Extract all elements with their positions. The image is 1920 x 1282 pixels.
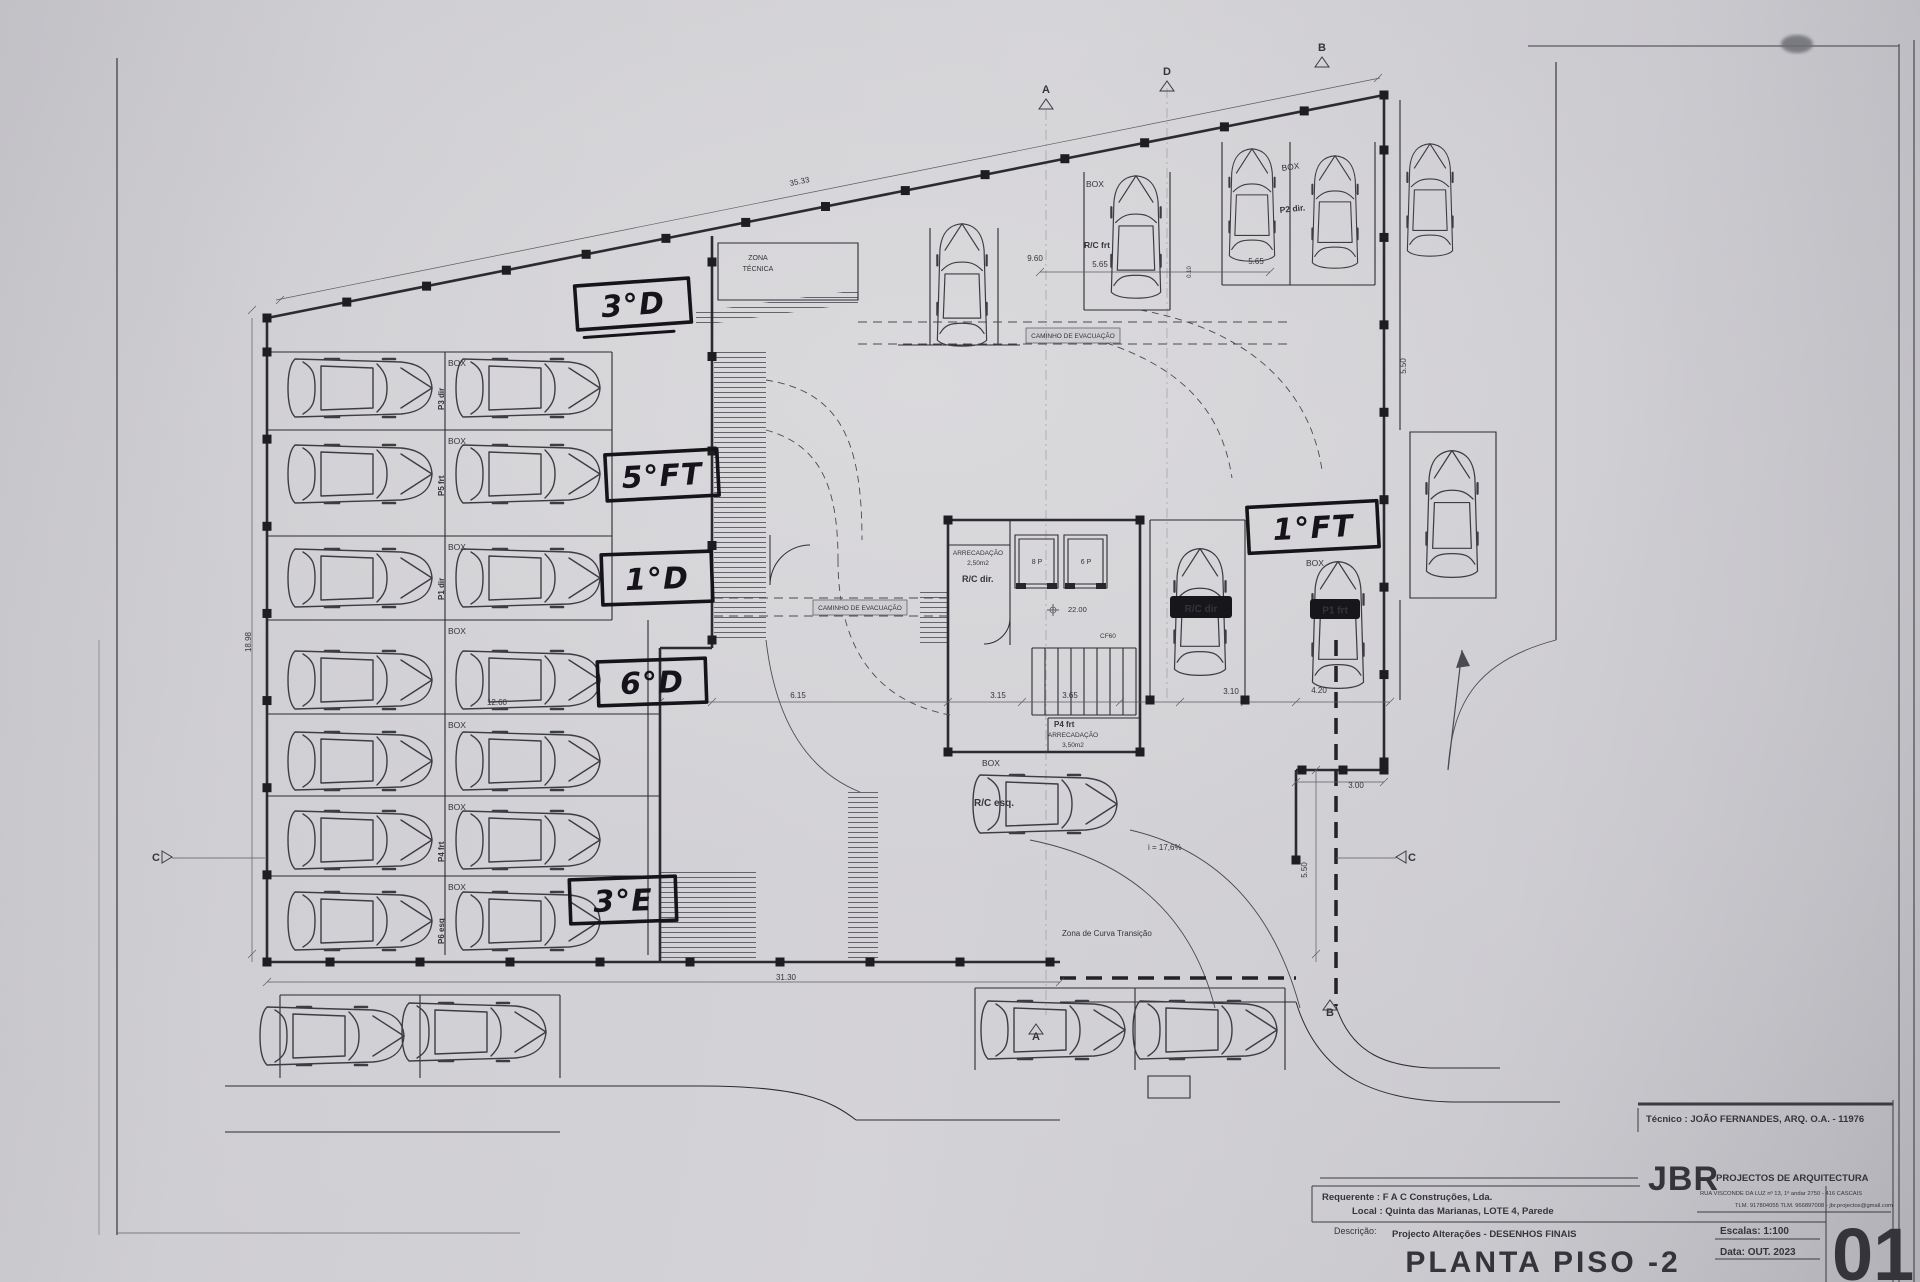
handwritten-text: 1°D bbox=[625, 561, 690, 598]
plan-label: BOX bbox=[1281, 161, 1300, 173]
car-icon bbox=[288, 359, 432, 417]
column-square bbox=[1300, 106, 1309, 115]
plan-label: P4 frt bbox=[1054, 720, 1075, 729]
car-icon bbox=[1312, 562, 1363, 689]
date-field: Data: OUT. 2023 bbox=[1720, 1247, 1796, 1258]
column-square bbox=[1380, 146, 1389, 155]
plan-label: Zona de Curva Transição bbox=[1062, 929, 1152, 938]
column-square bbox=[263, 522, 272, 531]
plan-label: 8 P bbox=[1032, 559, 1043, 566]
car-icon bbox=[456, 892, 600, 950]
firm-name: PROJECTOS DE ARQUITECTURA bbox=[1716, 1173, 1869, 1184]
handwritten-text: 1°FT bbox=[1272, 509, 1356, 548]
column-square bbox=[263, 958, 272, 967]
sheet-number: 01 bbox=[1832, 1213, 1914, 1282]
column-square bbox=[1380, 670, 1389, 679]
column-square bbox=[1380, 233, 1389, 242]
column-square bbox=[1046, 958, 1055, 967]
driveway-guides bbox=[714, 310, 1556, 1008]
column-square bbox=[263, 783, 272, 792]
car-icon bbox=[288, 445, 432, 503]
section-letter: C bbox=[152, 852, 160, 864]
plan-label: BOX bbox=[448, 720, 466, 730]
dimension-label: 5.65 bbox=[1248, 257, 1264, 266]
description-label: Descrição: bbox=[1334, 1226, 1377, 1236]
section-triangle-icon bbox=[162, 851, 172, 863]
section-letter: A bbox=[1042, 84, 1050, 96]
column-square bbox=[263, 348, 272, 357]
car-icon bbox=[456, 651, 600, 709]
car-icon bbox=[260, 1007, 404, 1065]
car-icon bbox=[456, 811, 600, 869]
column-square bbox=[741, 218, 750, 227]
ramp-hatching bbox=[660, 290, 948, 958]
column-square bbox=[1140, 138, 1149, 147]
column-square bbox=[263, 696, 272, 705]
column-square bbox=[1220, 122, 1229, 131]
column-square bbox=[342, 298, 351, 307]
dimension-label: 4.20 bbox=[1311, 686, 1327, 695]
section-triangle-icon bbox=[1315, 57, 1329, 67]
car-icon bbox=[456, 732, 600, 790]
dimension-label: 3.00 bbox=[1348, 781, 1364, 790]
section-letter: B bbox=[1326, 1007, 1334, 1019]
dimension-label: 6.15 bbox=[790, 691, 806, 700]
dimension-label: 3.10 bbox=[1223, 687, 1239, 696]
dimension-label: 18.98 bbox=[244, 631, 253, 652]
column-square bbox=[866, 958, 875, 967]
section-letter: B bbox=[1318, 42, 1326, 54]
plan-label: BOX bbox=[448, 436, 466, 446]
section-letter: A bbox=[1032, 1031, 1040, 1043]
plan-label: i = 17,6% bbox=[1148, 843, 1182, 852]
handwritten-note: 6°D bbox=[597, 658, 706, 706]
dimension-label: 3.65 bbox=[1062, 691, 1078, 700]
description-field: Projecto Alterações - DESENHOS FINAIS bbox=[1392, 1229, 1576, 1240]
dimension-label: 35.33 bbox=[789, 175, 811, 188]
column-square bbox=[686, 958, 695, 967]
column-square bbox=[1380, 408, 1389, 417]
client-field: Requerente : F A C Construções, Lda. bbox=[1322, 1192, 1492, 1203]
car-icon bbox=[1426, 451, 1477, 578]
column-square bbox=[416, 958, 425, 967]
car-icon bbox=[981, 1001, 1125, 1059]
plan-label: R/C dir. bbox=[962, 574, 994, 584]
car-icon bbox=[937, 224, 986, 346]
plan-label: 6 P bbox=[1081, 559, 1092, 566]
dimension-label: 31.30 bbox=[776, 973, 797, 982]
column-square bbox=[708, 636, 717, 645]
plan-label: ARRECADAÇÃO bbox=[1048, 730, 1098, 739]
column-square bbox=[1298, 766, 1307, 775]
plan-label: ZONA bbox=[748, 255, 768, 262]
plan-label: 2,50m2 bbox=[967, 560, 989, 567]
column-square bbox=[263, 609, 272, 618]
location-field: Local : Quinta das Marianas, LOTE 4, Par… bbox=[1352, 1206, 1554, 1217]
column-square bbox=[944, 516, 953, 525]
handwritten-underline bbox=[584, 331, 674, 337]
firm-contacts: TLM. 917804055 TLM. 966897008 - jbr.proj… bbox=[1735, 1203, 1893, 1209]
column-square bbox=[596, 958, 605, 967]
car-icon bbox=[456, 549, 600, 607]
column-square bbox=[1136, 516, 1145, 525]
column-square bbox=[506, 958, 515, 967]
column-square bbox=[708, 352, 717, 361]
car-icon bbox=[288, 892, 432, 950]
handwritten-unit-notes: 3°D5°FT1°D6°D3°E1°FT bbox=[569, 278, 1379, 924]
column-square bbox=[821, 202, 830, 211]
section-letter: D bbox=[1163, 66, 1171, 78]
section-triangle-icon bbox=[1039, 99, 1053, 109]
unit-badge-label: R/C dir bbox=[1185, 604, 1218, 615]
plan-label: TÉCNICA bbox=[743, 264, 774, 273]
column-square bbox=[1380, 320, 1389, 329]
car-icon bbox=[1133, 1001, 1277, 1059]
sheet-title: PLANTA PISO -2 bbox=[1405, 1246, 1680, 1279]
column-square bbox=[263, 870, 272, 879]
unit-badge-label: P1 frt bbox=[1322, 605, 1348, 616]
section-letter: C bbox=[1408, 852, 1416, 864]
plan-label: BOX bbox=[448, 882, 466, 892]
column-square bbox=[422, 282, 431, 291]
handwritten-text: 5°FT bbox=[621, 457, 705, 496]
plan-label: P1 dir bbox=[437, 578, 446, 600]
dimension-label: 3.15 bbox=[990, 691, 1006, 700]
car-icon bbox=[456, 445, 600, 503]
column-square bbox=[582, 250, 591, 259]
section-triangle-icon bbox=[1396, 851, 1406, 863]
column-square bbox=[901, 186, 910, 195]
column-square bbox=[708, 258, 717, 267]
car-icon bbox=[288, 811, 432, 869]
plan-label: CF60 bbox=[1100, 633, 1116, 640]
car-icon bbox=[1312, 156, 1357, 268]
garage-walls bbox=[225, 62, 1560, 1132]
plan-label: P4 frt bbox=[437, 841, 446, 862]
column-square bbox=[1241, 696, 1250, 705]
handwritten-text: 3°D bbox=[600, 286, 666, 325]
title-block: Técnico : JOÃO FERNANDES, ARQ. O.A. - 11… bbox=[1312, 1100, 1914, 1282]
plan-label: CAMINHO DE EVACUAÇÃO bbox=[1031, 331, 1115, 340]
dimension-label: 0.10 bbox=[1187, 266, 1193, 278]
dimension-label: 5.50 bbox=[1399, 358, 1408, 374]
column-square bbox=[1380, 583, 1389, 592]
car-icon bbox=[1229, 149, 1274, 261]
dimension-label: 5.50 bbox=[1300, 862, 1309, 878]
column-square bbox=[981, 170, 990, 179]
car-icon bbox=[1407, 144, 1452, 256]
dimension-label: 12.60 bbox=[487, 698, 508, 707]
dimension-label: 9.60 bbox=[1027, 254, 1043, 263]
handwritten-text: 3°E bbox=[593, 883, 654, 920]
column-square bbox=[1339, 766, 1348, 775]
column-square bbox=[956, 958, 965, 967]
column-square bbox=[1380, 758, 1389, 767]
plan-label: R/C esq. bbox=[974, 798, 1014, 809]
plan-label: P3 dir bbox=[437, 388, 446, 410]
handwritten-note: 5°FT bbox=[605, 449, 719, 501]
photographed-architecture-sheet: { "title_block": { "technician": "Técnic… bbox=[0, 0, 1920, 1282]
plan-label: 3,50m2 bbox=[1062, 742, 1084, 749]
column-square bbox=[776, 958, 785, 967]
plan-label: BOX bbox=[448, 358, 466, 368]
car-icon bbox=[288, 732, 432, 790]
handwritten-note: 3°D bbox=[575, 278, 692, 338]
car-icon bbox=[402, 1003, 546, 1061]
handwritten-note: 1°FT bbox=[1247, 501, 1379, 554]
plan-label: BOX bbox=[448, 542, 466, 552]
column-square bbox=[661, 234, 670, 243]
column-square bbox=[263, 435, 272, 444]
plan-label: BOX bbox=[448, 626, 466, 636]
scale-field: Escalas: 1:100 bbox=[1720, 1226, 1789, 1237]
dimension-label: 5.65 bbox=[1092, 260, 1108, 269]
unit-badges: R/C dirP1 frt bbox=[1170, 596, 1360, 619]
car-icon bbox=[1111, 176, 1160, 298]
plan-label: P6 esq bbox=[437, 918, 446, 944]
plan-label: P5 frt bbox=[437, 475, 446, 496]
column-square bbox=[1136, 748, 1145, 757]
column-square bbox=[1380, 91, 1389, 100]
column-square bbox=[263, 314, 272, 323]
car-icon bbox=[288, 549, 432, 607]
plan-label: BOX bbox=[982, 758, 1000, 768]
plan-label: P2 dir. bbox=[1279, 202, 1305, 215]
column-square bbox=[502, 266, 511, 275]
firm-address: RUA VISCONDE DA LUZ nº 13, 1º andar 2750… bbox=[1700, 1190, 1862, 1197]
dimension-label: 22.00 bbox=[1068, 605, 1087, 614]
sheet-frame bbox=[99, 40, 1914, 1282]
handwritten-note: 1°D bbox=[601, 551, 713, 605]
column-square bbox=[1146, 696, 1155, 705]
car-icon bbox=[456, 359, 600, 417]
column-square bbox=[326, 958, 335, 967]
column-square bbox=[944, 748, 953, 757]
column-square bbox=[1380, 495, 1389, 504]
plan-label: BOX bbox=[1086, 179, 1104, 189]
plan-label: BOX bbox=[1306, 558, 1324, 568]
plan-label: R/C frt bbox=[1084, 240, 1110, 250]
technician-field: Técnico : JOÃO FERNANDES, ARQ. O.A. - 11… bbox=[1646, 1114, 1864, 1125]
handwritten-text: 6°D bbox=[620, 665, 685, 702]
plan-annotations: BOXBOXBOXBOXBOXBOXBOXBOXBOXBOXBOXP3 dirP… bbox=[244, 161, 1408, 982]
car-icon bbox=[288, 651, 432, 709]
column-square bbox=[708, 541, 717, 550]
plan-label: CAMINHO DE EVACUAÇÃO bbox=[818, 603, 902, 612]
binder-hole-shadow bbox=[1781, 35, 1813, 53]
floor-plan-drawing: R/C dirP1 frt BOXBOXBOXBOXBOXBOXBOXBOXBO… bbox=[0, 0, 1920, 1282]
plan-label: ARRECADAÇÃO bbox=[953, 548, 1003, 557]
column-square bbox=[1060, 154, 1069, 163]
plan-label: BOX bbox=[448, 802, 466, 812]
column-square bbox=[1380, 766, 1389, 775]
